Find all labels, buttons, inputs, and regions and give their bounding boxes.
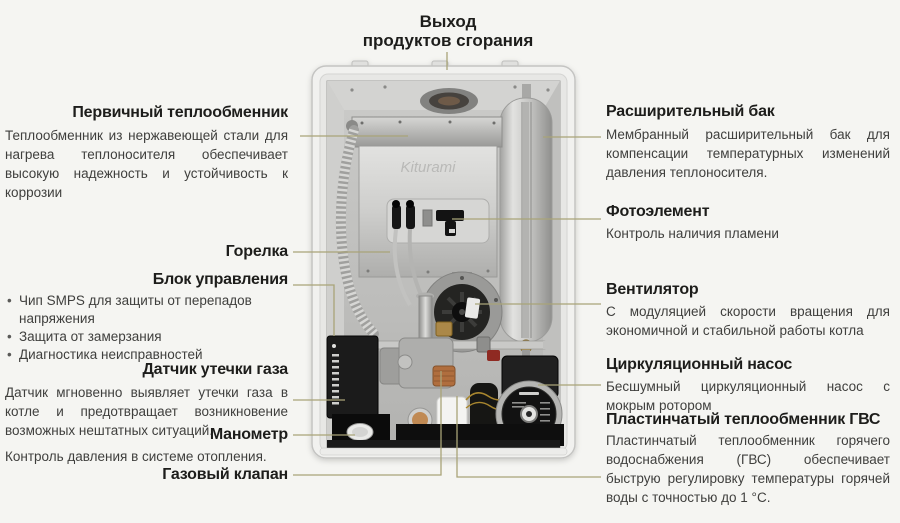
manometer	[347, 424, 373, 441]
expansion-tank	[500, 84, 552, 364]
boiler-photo: Kiturami	[0, 0, 900, 523]
flue-collar	[420, 88, 478, 114]
boiler-diagram-page: Выход продуктов сгорания Первичный тепло…	[0, 0, 900, 523]
heat-exchanger: Kiturami	[352, 117, 502, 277]
brand-embossed: Kiturami	[400, 159, 456, 176]
